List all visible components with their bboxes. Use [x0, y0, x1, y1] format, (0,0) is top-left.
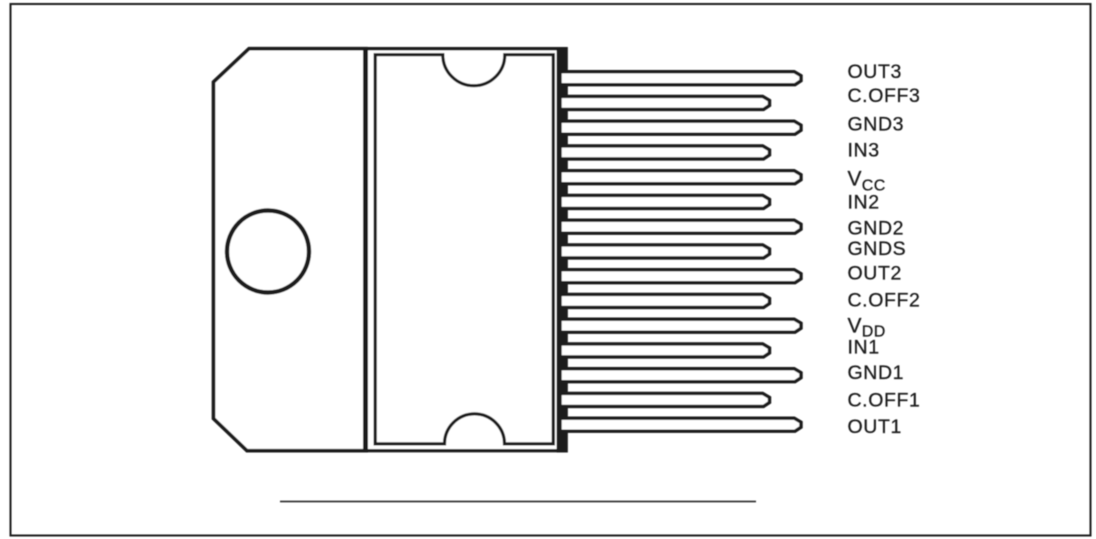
svg-text:GND1: GND1 [848, 362, 905, 384]
svg-text:OUT2: OUT2 [848, 262, 902, 284]
svg-text:IN1: IN1 [848, 336, 880, 358]
svg-text:OUT3: OUT3 [848, 61, 902, 83]
svg-text:V: V [848, 314, 862, 337]
svg-text:V: V [848, 167, 862, 190]
svg-text:GNDS: GNDS [848, 238, 907, 260]
svg-text:IN3: IN3 [848, 139, 880, 161]
svg-text:IN2: IN2 [848, 192, 880, 214]
svg-text:C.OFF2: C.OFF2 [848, 290, 921, 312]
svg-text:GND3: GND3 [848, 113, 905, 135]
svg-text:C.OFF1: C.OFF1 [848, 390, 921, 412]
svg-text:OUT1: OUT1 [848, 416, 902, 438]
svg-text:C.OFF3: C.OFF3 [848, 85, 921, 107]
svg-text:GND2: GND2 [848, 218, 905, 240]
